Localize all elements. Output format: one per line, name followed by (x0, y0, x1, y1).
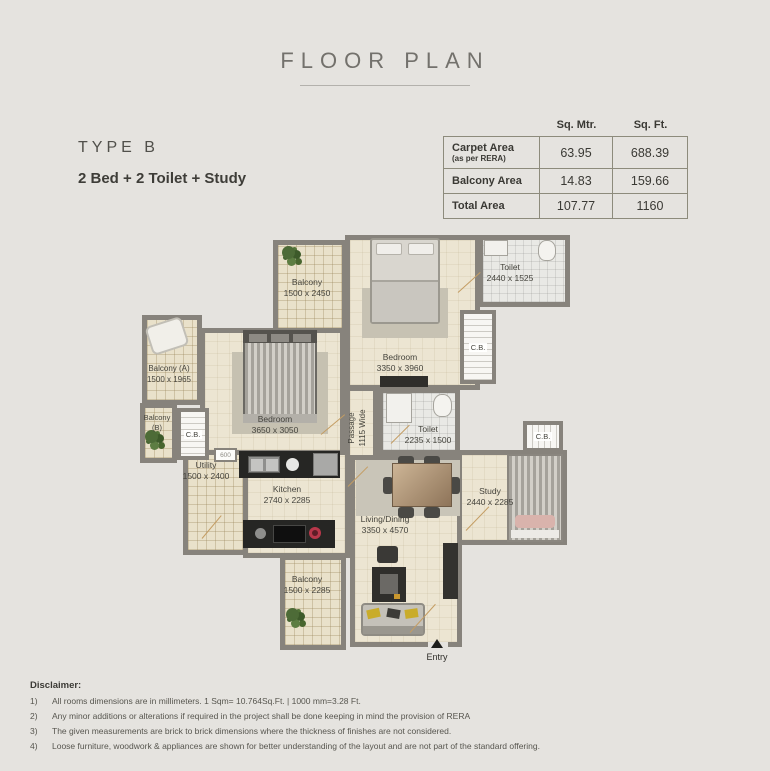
table-row: Total Area 107.77 1160 (444, 193, 687, 218)
row-label-balcony-area: Balcony Area (444, 169, 540, 193)
room-label-balcony-top: Balcony 1500 x 2450 (272, 277, 342, 300)
room-label-study: Study 2440 x 2285 (454, 486, 526, 509)
table-row: Balcony Area 14.83 159.66 (444, 168, 687, 193)
row-label-total-area: Total Area (444, 194, 540, 218)
cupboard-bedroom2: C.B. (177, 408, 209, 460)
total-area-sqft: 1160 (613, 194, 687, 218)
wall-panel (443, 543, 458, 599)
area-table-header-row: Sq. Mtr. Sq. Ft. (443, 114, 688, 136)
carpet-area-sqmtr: 63.95 (540, 137, 613, 168)
area-table-header-sqmtr: Sq. Mtr. (540, 114, 613, 136)
room-label-balcony-bottom: Balcony 1500 x 2285 (276, 574, 338, 597)
disclaimer: Disclaimer: 1) All rooms dimensions are … (30, 680, 690, 751)
sofa (361, 603, 425, 636)
disclaimer-item: 4) Loose furniture, woodwork & appliance… (30, 741, 690, 751)
floor-plan-page: FLOOR PLAN TYPE B 2 Bed + 2 Toilet + Stu… (0, 0, 770, 771)
armchair (377, 546, 398, 563)
disclaimer-item: 1) All rooms dimensions are in millimete… (30, 696, 690, 706)
area-table-body: Carpet Area (as per RERA) 63.95 688.39 B… (443, 136, 688, 219)
total-area-sqmtr: 107.77 (540, 194, 613, 218)
area-table-header-spacer (443, 114, 540, 136)
dining-table (392, 463, 452, 507)
unit-configuration: 2 Bed + 2 Toilet + Study (78, 170, 246, 187)
table-row: Carpet Area (as per RERA) 63.95 688.39 (444, 137, 687, 168)
room-label-utility: Utility 1500 x 2400 (176, 460, 236, 483)
room-label-passage: Passage 1115 Wide (347, 391, 367, 465)
room-label-kitchen: Kitchen 2740 x 2285 (247, 484, 327, 507)
dresser-master (380, 376, 428, 387)
room-balcony-bottom (280, 555, 346, 650)
cupboard-label: C.B. (469, 343, 488, 352)
sink (484, 240, 508, 256)
plant (282, 246, 295, 259)
area-table: Sq. Mtr. Sq. Ft. Carpet Area (as per RER… (443, 114, 688, 219)
shower-tray (386, 393, 412, 423)
carpet-area-sqft: 688.39 (613, 137, 687, 168)
room-label-toilet-top: Toilet 2440 x 1525 (467, 262, 553, 285)
cupboard-study: C.B. (523, 421, 563, 452)
tv-console (372, 567, 406, 602)
room-label-balcony-a: Balcony (A) 1500 x 1965 (140, 364, 198, 386)
balcony-area-sqmtr: 14.83 (540, 169, 613, 193)
room-label-living-dining: Living/Dining 3350 x 4570 (337, 514, 433, 537)
page-title: FLOOR PLAN (0, 48, 770, 74)
balcony-area-sqft: 159.66 (613, 169, 687, 193)
cupboard-label: C.B. (534, 432, 553, 441)
room-label-bedroom-2: Bedroom 3650 x 3050 (230, 414, 320, 437)
floor-plan-drawing: C.B. C.B. C.B. 600 (140, 230, 570, 675)
unit-type-label: TYPE B (78, 139, 159, 157)
room-label-toilet-2: Toilet 2235 x 1500 (388, 424, 468, 447)
area-table-header-sqft: Sq. Ft. (613, 114, 688, 136)
bed-bedroom2 (243, 330, 317, 423)
entry-arrow-icon (431, 639, 443, 648)
cupboard-label: C.B. (184, 430, 203, 439)
kitchen-counter-top (239, 451, 340, 478)
disclaimer-item: 2) Any minor additions or alterations if… (30, 711, 690, 721)
row-label-carpet-area: Carpet Area (as per RERA) (444, 137, 540, 168)
toilet-wc (433, 394, 452, 417)
title-underline (300, 85, 470, 86)
bed-master (370, 238, 440, 324)
cupboard-master: C.B. (460, 310, 496, 384)
room-label-bedroom-master: Bedroom 3350 x 3960 (355, 352, 445, 375)
entry-label: Entry (416, 652, 458, 662)
plant (286, 608, 299, 621)
disclaimer-heading: Disclaimer: (30, 680, 690, 691)
kitchen-counter-hob (243, 520, 335, 548)
disclaimer-item: 3) The given measurements are brick to b… (30, 726, 690, 736)
toilet-wc (538, 240, 556, 261)
room-label-balcony-b: Balcony (B) (140, 413, 174, 433)
